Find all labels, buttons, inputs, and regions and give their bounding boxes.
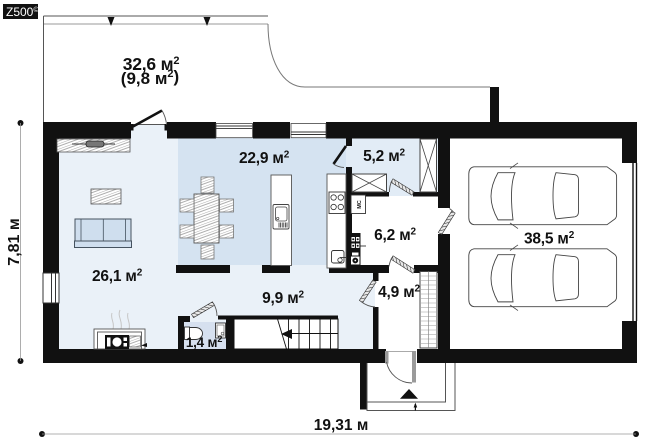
svg-text:26,1 м2: 26,1 м2 (92, 268, 143, 286)
svg-text:7,81 м: 7,81 м (6, 218, 23, 265)
svg-text:6,2 м2: 6,2 м2 (374, 227, 416, 245)
svg-text:19,31 м: 19,31 м (314, 417, 369, 434)
svg-text:38,5 м2: 38,5 м2 (524, 230, 575, 248)
svg-text:9,9 м2: 9,9 м2 (262, 290, 304, 308)
svg-text:4,9 м2: 4,9 м2 (378, 284, 420, 302)
svg-text:5,2 м2: 5,2 м2 (363, 148, 405, 166)
svg-text:22,9 м2: 22,9 м2 (239, 150, 290, 168)
svg-text:МС: МС (357, 200, 363, 209)
svg-text:1,4 м2: 1,4 м2 (186, 334, 223, 350)
